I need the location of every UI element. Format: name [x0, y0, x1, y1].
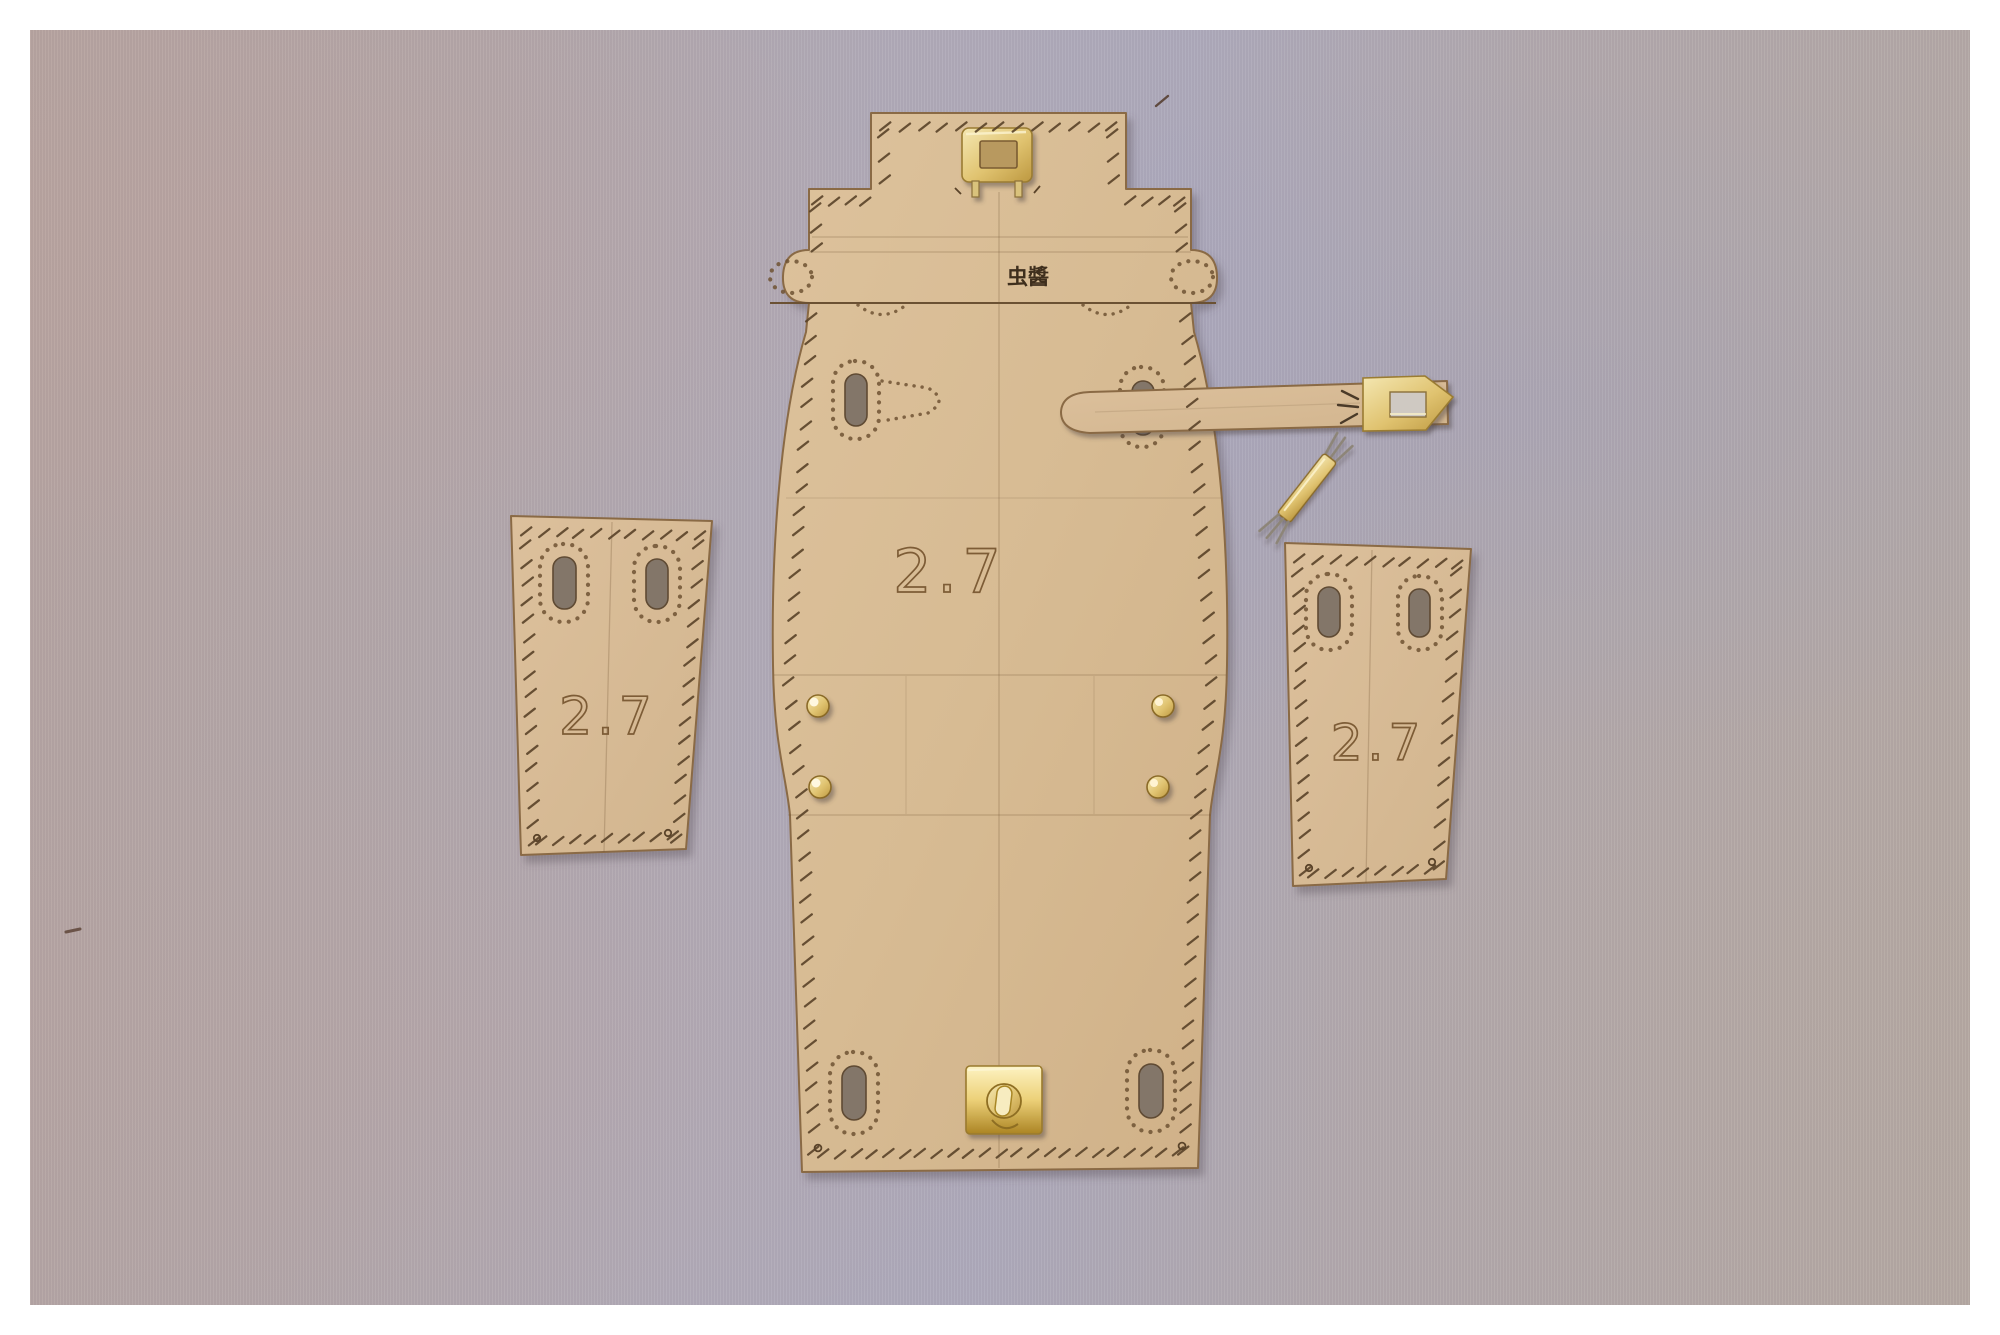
left-gusset-template: 2.7 — [511, 516, 712, 855]
rivet-highlight — [1155, 698, 1163, 706]
fabric-speck — [1156, 96, 1168, 106]
main-body-board — [773, 113, 1228, 1172]
turn-lock-oblong — [994, 1085, 1013, 1117]
oval-slot — [646, 559, 668, 609]
rivet — [809, 776, 831, 798]
rivet — [1152, 695, 1174, 717]
brass-turn-lock-hardware — [966, 1066, 1042, 1134]
keeper-opening — [980, 141, 1017, 168]
oval-slot — [845, 374, 867, 426]
right-gusset-template: 2.7 — [1285, 543, 1471, 886]
right-gusset-size-label: 2.7 — [1331, 714, 1426, 772]
keeper-prong — [1015, 181, 1022, 197]
rivet-highlight — [812, 779, 821, 788]
oval-slot — [553, 557, 576, 609]
brass-pronged-bar — [1259, 432, 1354, 545]
fabric-speck — [66, 929, 80, 932]
main-size-label: 2.7 — [893, 537, 1006, 607]
fabric-background: 2.7 虫醬 2.7 — [30, 30, 1970, 1305]
photo-page: 2.7 虫醬 2.7 — [0, 0, 2000, 1335]
left-gusset-size-label: 2.7 — [559, 687, 657, 747]
main-body-template: 2.7 虫醬 — [770, 113, 1227, 1172]
rivet — [1147, 776, 1169, 798]
brand-stamp: 虫醬 — [1007, 265, 1049, 289]
rivet — [807, 695, 829, 717]
keeper-prong — [972, 181, 979, 197]
oval-slot — [1139, 1064, 1163, 1118]
oval-slot — [842, 1066, 866, 1120]
oval-slot — [1318, 587, 1340, 637]
pronged-bar-body — [1277, 453, 1336, 523]
oval-slot — [1409, 589, 1430, 637]
rivet-highlight — [810, 698, 819, 707]
rivet-highlight — [1150, 779, 1158, 787]
scene-svg: 2.7 虫醬 2.7 — [30, 30, 1970, 1305]
